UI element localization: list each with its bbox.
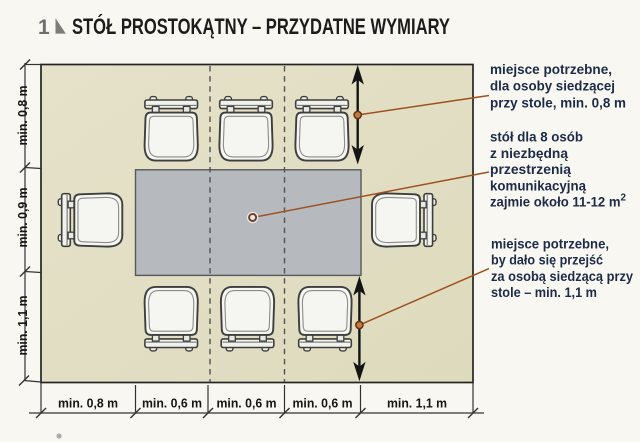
svg-text:przestrzenią: przestrzenią [490,161,571,177]
svg-text:min. 0,6 m: min. 0,6 m [142,395,202,410]
svg-text:min. 0,6 m: min. 0,6 m [293,395,353,410]
svg-text:min. 0,8 m: min. 0,8 m [58,395,118,410]
svg-text:stole – min. 1,1 m: stole – min. 1,1 m [491,284,597,300]
svg-text:przy stole, min. 0,8 m: przy stole, min. 0,8 m [490,94,626,110]
svg-text:by dało się przejść: by dało się przejść [491,252,603,268]
svg-text:min. 1,1 m: min. 1,1 m [15,296,30,356]
svg-text:z niezbędną: z niezbędną [490,145,568,161]
svg-text:min. 0,6 m: min. 0,6 m [217,395,277,410]
svg-text:1: 1 [38,16,50,39]
svg-text:min. 1,1 m: min. 1,1 m [387,395,447,410]
svg-text:stół dla 8 osób: stół dla 8 osób [490,129,583,145]
svg-text:miejsce potrzebne,: miejsce potrzebne, [491,236,609,252]
svg-text:min. 0,8 m: min. 0,8 m [15,86,30,146]
svg-text:STÓŁ PROSTOKĄTNY – PRZYDATNE W: STÓŁ PROSTOKĄTNY – PRZYDATNE WYMIARY [72,14,450,39]
svg-text:miejsce potrzebne,: miejsce potrzebne, [490,61,612,77]
svg-text:min. 0,9 m: min. 0,9 m [15,188,30,248]
svg-text:dla osoby siedzącej: dla osoby siedzącej [490,78,615,94]
svg-text:zajmie około 11-12 m2: zajmie około 11-12 m2 [490,192,626,210]
svg-text:komunikacyjną: komunikacyjną [490,177,586,193]
svg-text:za osobą siedzącą przy: za osobą siedzącą przy [491,268,633,284]
